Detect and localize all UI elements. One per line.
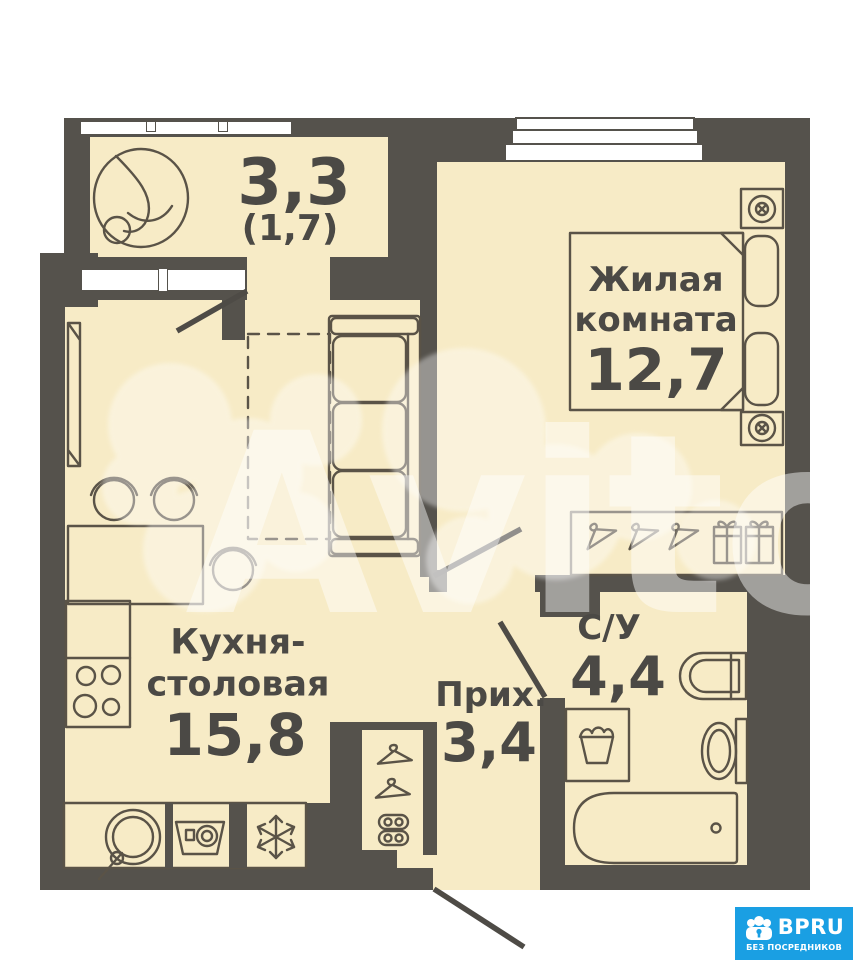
wall-segment — [540, 698, 565, 868]
floor-plan: Avito 3,3 (1,7) Жилая комната 12,7 Кухня… — [0, 0, 853, 960]
bathroom-label: С/У — [577, 611, 641, 645]
doorway-living — [437, 575, 535, 592]
kitchen-window-tick — [158, 268, 168, 292]
kitchen-area-label: 15,8 — [163, 706, 306, 764]
wall-segment — [423, 730, 437, 855]
living-window — [504, 143, 704, 162]
people-lock-icon — [744, 916, 774, 940]
wall-segment — [222, 292, 245, 340]
wall-segment — [747, 575, 810, 868]
wall-segment — [420, 300, 437, 577]
balcony-window — [79, 120, 293, 136]
hallway-area-label: 3,4 — [441, 716, 537, 770]
balcony-area-label: 3,3 — [237, 151, 350, 215]
living-room-area-label: 12,7 — [584, 341, 727, 399]
bathroom-area-label: 4,4 — [570, 650, 666, 704]
balcony-area-alt-label: (1,7) — [242, 211, 339, 247]
living-room-label: комната — [574, 303, 737, 337]
kitchen-floor — [64, 300, 420, 868]
kitchen-label: столовая — [147, 668, 330, 703]
hallway-label: Прих. — [435, 678, 546, 712]
bpru-badge: BPRU БЕЗ ПОСРЕДНИКОВ — [735, 907, 853, 960]
wall-segment — [540, 865, 810, 890]
wall-segment — [40, 868, 433, 890]
balcony-window-tick — [218, 121, 228, 132]
wall-segment — [64, 118, 90, 257]
living-room-label: Жилая — [588, 263, 723, 297]
wall-segment — [40, 253, 65, 890]
wall-segment — [305, 803, 345, 868]
kitchen-label: Кухня- — [170, 626, 305, 661]
balcony-window-tick — [146, 121, 156, 132]
wall-segment — [362, 850, 397, 868]
badge-tagline: БЕЗ ПОСРЕДНИКОВ — [746, 943, 842, 951]
doorway-balcony — [247, 257, 330, 300]
wall-segment — [429, 570, 447, 592]
doorway-entrance — [433, 868, 540, 890]
badge-brand: BPRU — [778, 917, 845, 938]
